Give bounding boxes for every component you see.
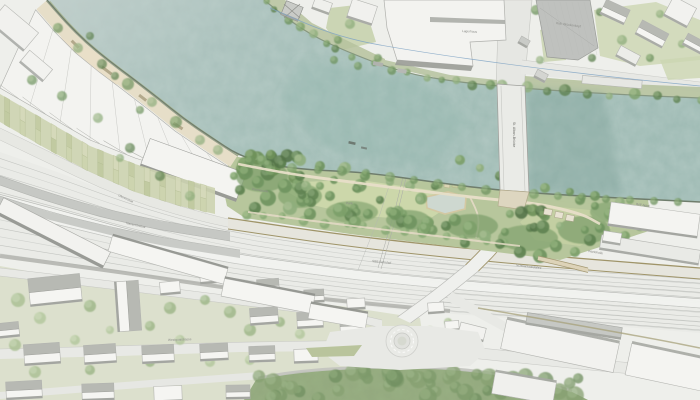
svg-text:Park: Park (346, 201, 353, 205)
svg-text:Westquaistrasse: Westquaistrasse (168, 337, 192, 342)
svg-text:Lagerhaus: Lagerhaus (462, 29, 478, 34)
svg-text:St. Alban-Brücke: St. Alban-Brücke (512, 122, 516, 147)
